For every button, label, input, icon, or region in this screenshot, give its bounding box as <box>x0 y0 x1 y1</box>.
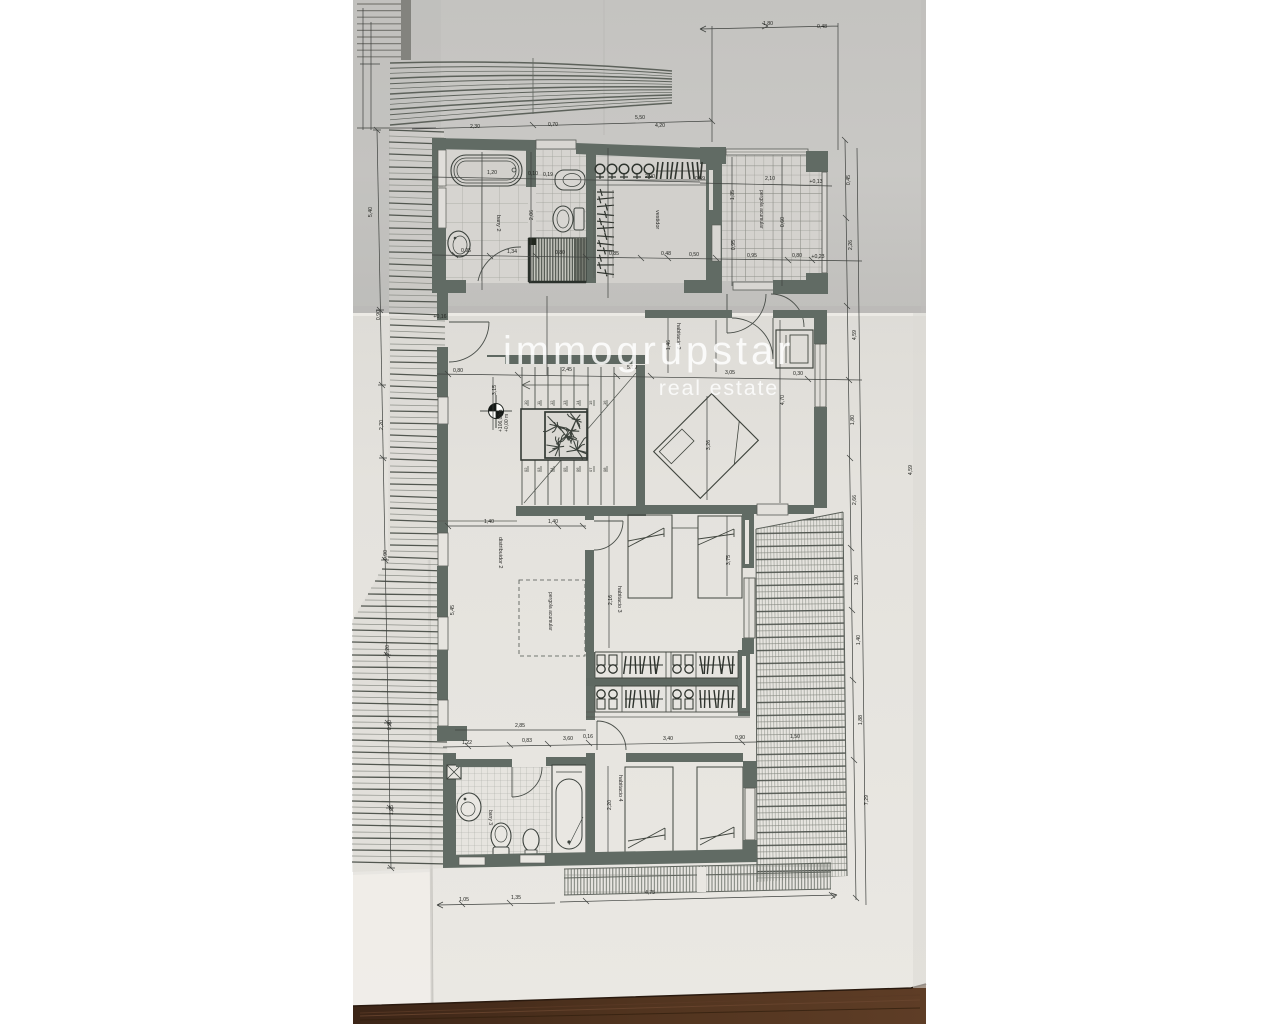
svg-text:4,59: 4,59 <box>852 330 858 340</box>
svg-text:immogrupstar: immogrupstar <box>503 329 794 373</box>
svg-text:1,50: 1,50 <box>790 734 800 740</box>
svg-text:0,83: 0,83 <box>522 738 532 744</box>
svg-text:1,40: 1,40 <box>548 519 558 525</box>
svg-text:0,45: 0,45 <box>846 175 852 185</box>
svg-text:08: 08 <box>602 467 607 472</box>
svg-text:1,20: 1,20 <box>487 170 497 176</box>
svg-text:pergola acumular: pergola acumular <box>758 190 764 229</box>
svg-text:0,95: 0,95 <box>461 248 471 254</box>
svg-text:3,75: 3,75 <box>726 555 732 565</box>
svg-text:0,85: 0,85 <box>609 251 619 257</box>
svg-text:0,80: 0,80 <box>792 253 802 259</box>
svg-text:2,20: 2,20 <box>379 420 385 430</box>
svg-text:5,50: 5,50 <box>635 115 645 121</box>
svg-text:0,95: 0,95 <box>731 240 737 250</box>
svg-text:4,75: 4,75 <box>645 890 655 896</box>
svg-text:pergola acumular: pergola acumular <box>547 592 553 631</box>
svg-text:0,95: 0,95 <box>747 253 757 259</box>
svg-text:1,40: 1,40 <box>484 519 494 525</box>
svg-text:03: 03 <box>536 467 541 472</box>
svg-text:05: 05 <box>562 467 567 472</box>
svg-text:3,26: 3,26 <box>706 440 712 450</box>
svg-text:bany 3: bany 3 <box>487 810 493 825</box>
svg-text:02: 02 <box>523 467 528 472</box>
svg-text:3,15: 3,15 <box>492 385 498 395</box>
svg-text:+0,16: +0,16 <box>433 314 446 320</box>
svg-text:0,70: 0,70 <box>548 122 558 128</box>
svg-text:15: 15 <box>588 400 593 405</box>
svg-text:+0,00 m: +0,00 m <box>504 414 510 432</box>
svg-text:0,16: 0,16 <box>583 734 593 740</box>
svg-text:0,30: 0,30 <box>793 371 803 377</box>
svg-text:1,34: 1,34 <box>507 249 517 255</box>
svg-text:0,80: 0,80 <box>453 368 463 374</box>
svg-text:1,35: 1,35 <box>730 190 736 200</box>
svg-text:0,90: 0,90 <box>735 735 745 741</box>
svg-text:habitacio 3: habitacio 3 <box>616 586 622 613</box>
svg-text:2,06: 2,06 <box>529 210 535 220</box>
svg-text:1,35: 1,35 <box>511 895 521 901</box>
svg-text:06: 06 <box>575 467 580 472</box>
svg-text:12: 12 <box>549 400 554 405</box>
svg-text:13: 13 <box>562 400 567 405</box>
svg-text:1,05: 1,05 <box>459 897 469 903</box>
svg-text:1,05: 1,05 <box>389 805 395 815</box>
svg-text:3,40: 3,40 <box>663 736 673 742</box>
svg-text:bany 2: bany 2 <box>495 215 501 232</box>
svg-text:4,59: 4,59 <box>908 465 914 475</box>
svg-text:5,45: 5,45 <box>450 605 456 615</box>
svg-text:10: 10 <box>523 400 528 405</box>
svg-text:14: 14 <box>575 400 580 405</box>
svg-text:1,80: 1,80 <box>763 21 773 27</box>
svg-text:0,50: 0,50 <box>689 252 699 258</box>
svg-text:0,48: 0,48 <box>817 24 827 30</box>
svg-text:2,85: 2,85 <box>515 723 525 729</box>
svg-text:1,40: 1,40 <box>856 635 862 645</box>
svg-text:1,30: 1,30 <box>854 575 860 585</box>
svg-text:+0,23: +0,23 <box>811 254 824 260</box>
svg-text:2,66: 2,66 <box>852 495 858 505</box>
svg-text:7,29: 7,29 <box>864 795 870 805</box>
svg-text:+0,13: +0,13 <box>809 179 822 185</box>
svg-text:0,90: 0,90 <box>376 310 382 320</box>
svg-text:0,10: 0,10 <box>528 171 538 177</box>
svg-text:0,48: 0,48 <box>661 251 671 257</box>
svg-text:5,40: 5,40 <box>368 207 374 217</box>
svg-text:0,90: 0,90 <box>387 720 393 730</box>
svg-text:1,88: 1,88 <box>858 715 864 725</box>
svg-text:04: 04 <box>549 467 554 472</box>
svg-text:distribuidor 2: distribuidor 2 <box>497 537 503 569</box>
svg-text:2,90: 2,90 <box>645 174 655 180</box>
svg-text:0,59: 0,59 <box>695 176 705 182</box>
svg-text:2,20: 2,20 <box>385 645 391 655</box>
svg-text:2,20: 2,20 <box>607 800 613 810</box>
svg-text:1,80: 1,80 <box>850 415 856 425</box>
svg-text:3,60: 3,60 <box>563 736 573 742</box>
svg-text:2,26: 2,26 <box>848 240 854 250</box>
svg-text:4,20: 4,20 <box>655 123 665 129</box>
svg-text:0,19: 0,19 <box>543 172 553 178</box>
svg-text:16: 16 <box>602 400 607 405</box>
svg-text:habitacio 4: habitacio 4 <box>617 775 623 802</box>
svg-text:1,22: 1,22 <box>462 740 472 746</box>
svg-text:4,70: 4,70 <box>780 395 786 405</box>
svg-text:2,16: 2,16 <box>608 595 614 605</box>
svg-text:vestidor: vestidor <box>654 210 660 229</box>
svg-text:0,90: 0,90 <box>383 550 389 560</box>
svg-text:0,60: 0,60 <box>780 217 786 227</box>
svg-text:2,30: 2,30 <box>470 124 480 130</box>
svg-text:0,80: 0,80 <box>555 250 565 256</box>
svg-text:real estate: real estate <box>659 376 779 400</box>
svg-text:2,10: 2,10 <box>765 176 775 182</box>
svg-text:07: 07 <box>588 467 593 472</box>
